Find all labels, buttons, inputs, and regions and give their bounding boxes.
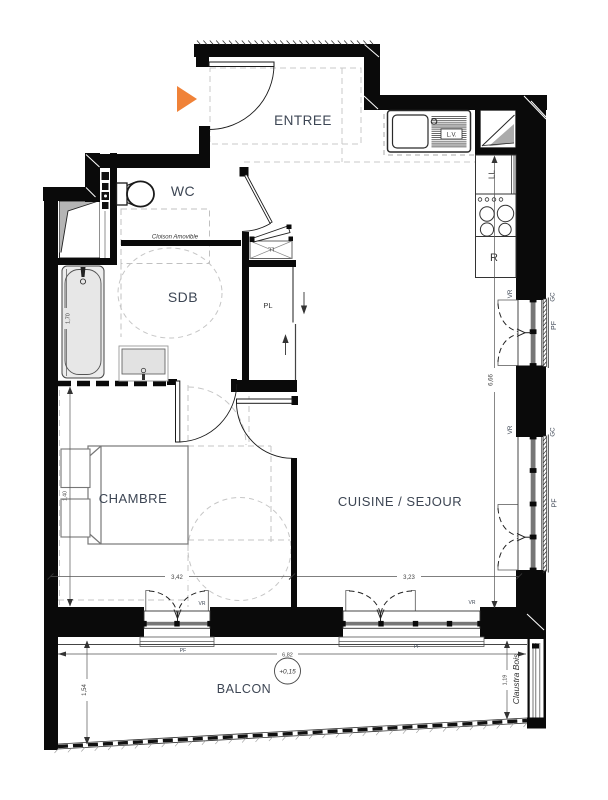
svg-text:CUISINE / SEJOUR: CUISINE / SEJOUR (338, 494, 462, 509)
svg-text:BALCON: BALCON (217, 682, 271, 696)
svg-text:GC: GC (550, 292, 557, 302)
svg-text:PF: PF (552, 499, 559, 508)
svg-text:1,19: 1,19 (503, 675, 509, 686)
svg-text:SDB: SDB (168, 289, 198, 305)
svg-text:PF: PF (180, 648, 186, 654)
svg-text:6,66: 6,66 (489, 374, 495, 386)
svg-text:GC: GC (550, 427, 557, 437)
svg-text:WC: WC (171, 183, 195, 199)
svg-text:ENTREE: ENTREE (274, 113, 332, 128)
svg-text:1,54: 1,54 (82, 684, 88, 696)
svg-text:R: R (490, 252, 498, 264)
svg-text:3,42: 3,42 (171, 575, 183, 581)
svg-text:1,70: 1,70 (66, 313, 72, 324)
svg-text:VR: VR (469, 600, 476, 606)
svg-text:3,23: 3,23 (403, 575, 415, 581)
svg-text:LL: LL (488, 170, 497, 179)
svg-text:VR: VR (507, 425, 514, 434)
svg-text:1,40: 1,40 (63, 491, 69, 501)
svg-text:PL: PL (263, 301, 272, 310)
svg-text:PF: PF (414, 644, 420, 650)
svg-text:VR: VR (507, 289, 514, 298)
svg-text:+0,15: +0,15 (279, 669, 296, 676)
svg-text:PF: PF (551, 321, 558, 330)
svg-text:Cloison Amovible: Cloison Amovible (152, 235, 199, 241)
svg-text:VR: VR (199, 601, 206, 607)
svg-text:LL: LL (268, 246, 274, 252)
svg-text:CHAMBRE: CHAMBRE (99, 491, 168, 506)
svg-text:Claustra Bois: Claustra Bois (511, 653, 521, 704)
svg-text:L.V.: L.V. (446, 133, 456, 139)
